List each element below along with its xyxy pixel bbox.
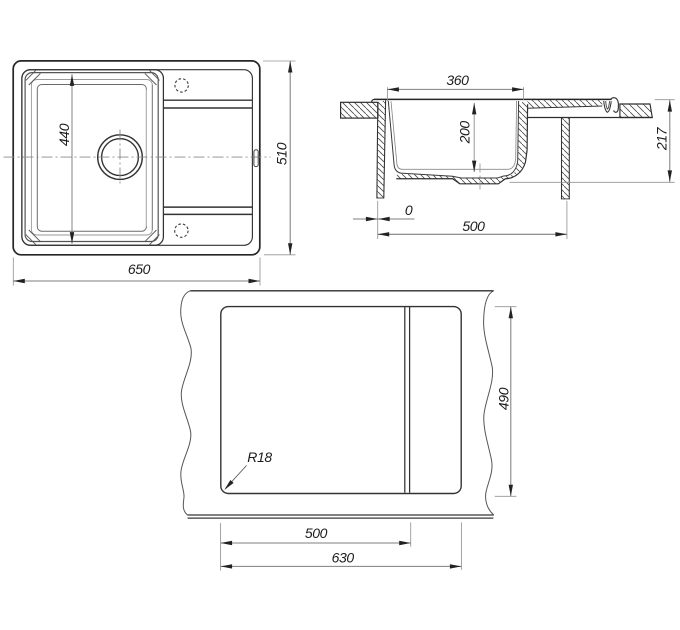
svg-text:200: 200 [457,121,473,145]
svg-text:510: 510 [274,142,290,165]
svg-text:650: 650 [128,261,151,277]
svg-text:360: 360 [446,72,469,88]
svg-text:490: 490 [496,387,512,410]
svg-text:R18: R18 [247,449,272,465]
svg-text:440: 440 [56,123,72,146]
svg-text:500: 500 [305,525,328,541]
svg-text:630: 630 [332,550,355,566]
svg-text:500: 500 [462,218,485,234]
svg-text:217: 217 [653,126,669,151]
svg-text:0: 0 [405,202,413,218]
